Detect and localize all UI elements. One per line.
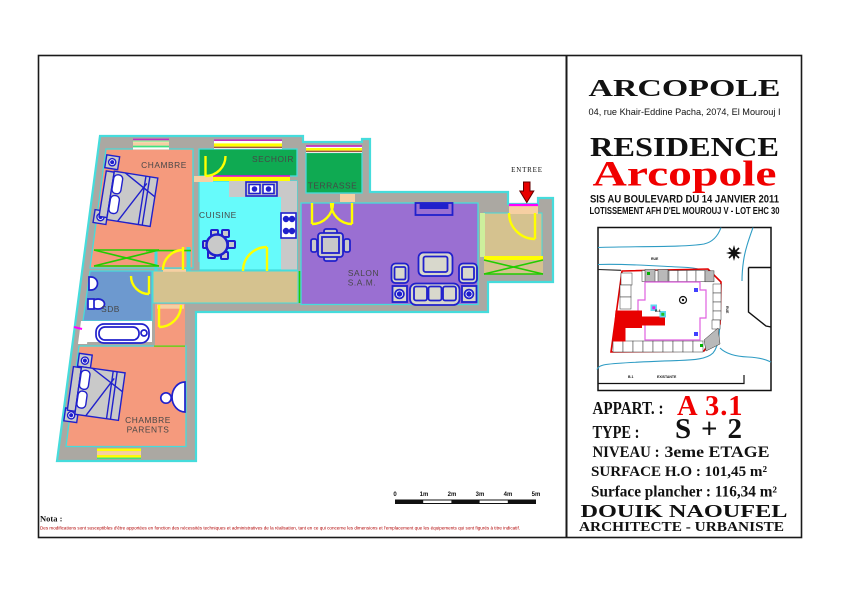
svg-text:S.A.M.: S.A.M. [348, 278, 376, 288]
svg-text:Des modifications sont suscept: Des modifications sont susceptibles d'êt… [40, 526, 520, 531]
svg-text:RUE: RUE [651, 257, 659, 261]
svg-text:NIVEAU :: NIVEAU : [593, 444, 660, 461]
svg-text:S + 2: S + 2 [675, 413, 742, 445]
svg-text:LOTISSEMENT AFH D'EL MOUROUJ V: LOTISSEMENT AFH D'EL MOUROUJ V - LOT EHC… [590, 206, 780, 217]
svg-text:CHAMBRE: CHAMBRE [141, 160, 187, 170]
svg-text:ARCHITECTE - URBANISTE: ARCHITECTE - URBANISTE [579, 520, 784, 535]
svg-text:Surface plancher : 116,34 m²: Surface plancher : 116,34 m² [591, 484, 777, 501]
svg-text:SIS AU BOULEVARD DU 14 JANVIER: SIS AU BOULEVARD DU 14 JANVIER 2011 [590, 194, 779, 206]
svg-text:B.4: B.4 [655, 309, 661, 313]
svg-text:1m: 1m [420, 492, 429, 498]
svg-text:DOUIK NAOUFEL: DOUIK NAOUFEL [581, 501, 788, 521]
svg-text:SURFACE H.O : 101,45 m²: SURFACE H.O : 101,45 m² [591, 464, 767, 480]
svg-text:TERRASSE: TERRASSE [308, 181, 358, 191]
svg-text:4m: 4m [504, 492, 513, 498]
svg-text:5m: 5m [532, 492, 541, 498]
svg-text:Nota :: Nota : [40, 514, 63, 524]
svg-text:CUISINE: CUISINE [199, 210, 237, 220]
svg-text:SDB: SDB [101, 304, 120, 314]
svg-text:TYPE :: TYPE : [593, 422, 640, 442]
svg-text:CHAMBRE: CHAMBRE [125, 415, 171, 425]
svg-text:PARENTS: PARENTS [127, 425, 170, 435]
svg-text:04, rue Khair-Eddine Pacha, 20: 04, rue Khair-Eddine Pacha, 2074, El Mou… [589, 107, 781, 118]
svg-text:SALON: SALON [348, 268, 379, 278]
svg-text:ARCOPOLE: ARCOPOLE [589, 76, 781, 102]
svg-text:RUE: RUE [725, 306, 729, 314]
svg-text:3m: 3m [476, 492, 485, 498]
svg-text:2m: 2m [448, 492, 457, 498]
svg-text:EXISTANTE: EXISTANTE [657, 375, 677, 379]
svg-text:APPART. :: APPART. : [593, 398, 664, 418]
svg-text:SECHOIR: SECHOIR [252, 154, 294, 164]
svg-text:Arcopole: Arcopole [593, 154, 777, 194]
svg-text:3eme ETAGE: 3eme ETAGE [665, 444, 770, 461]
svg-text:B.1: B.1 [628, 375, 634, 379]
svg-text:ENTREE: ENTREE [511, 166, 543, 174]
